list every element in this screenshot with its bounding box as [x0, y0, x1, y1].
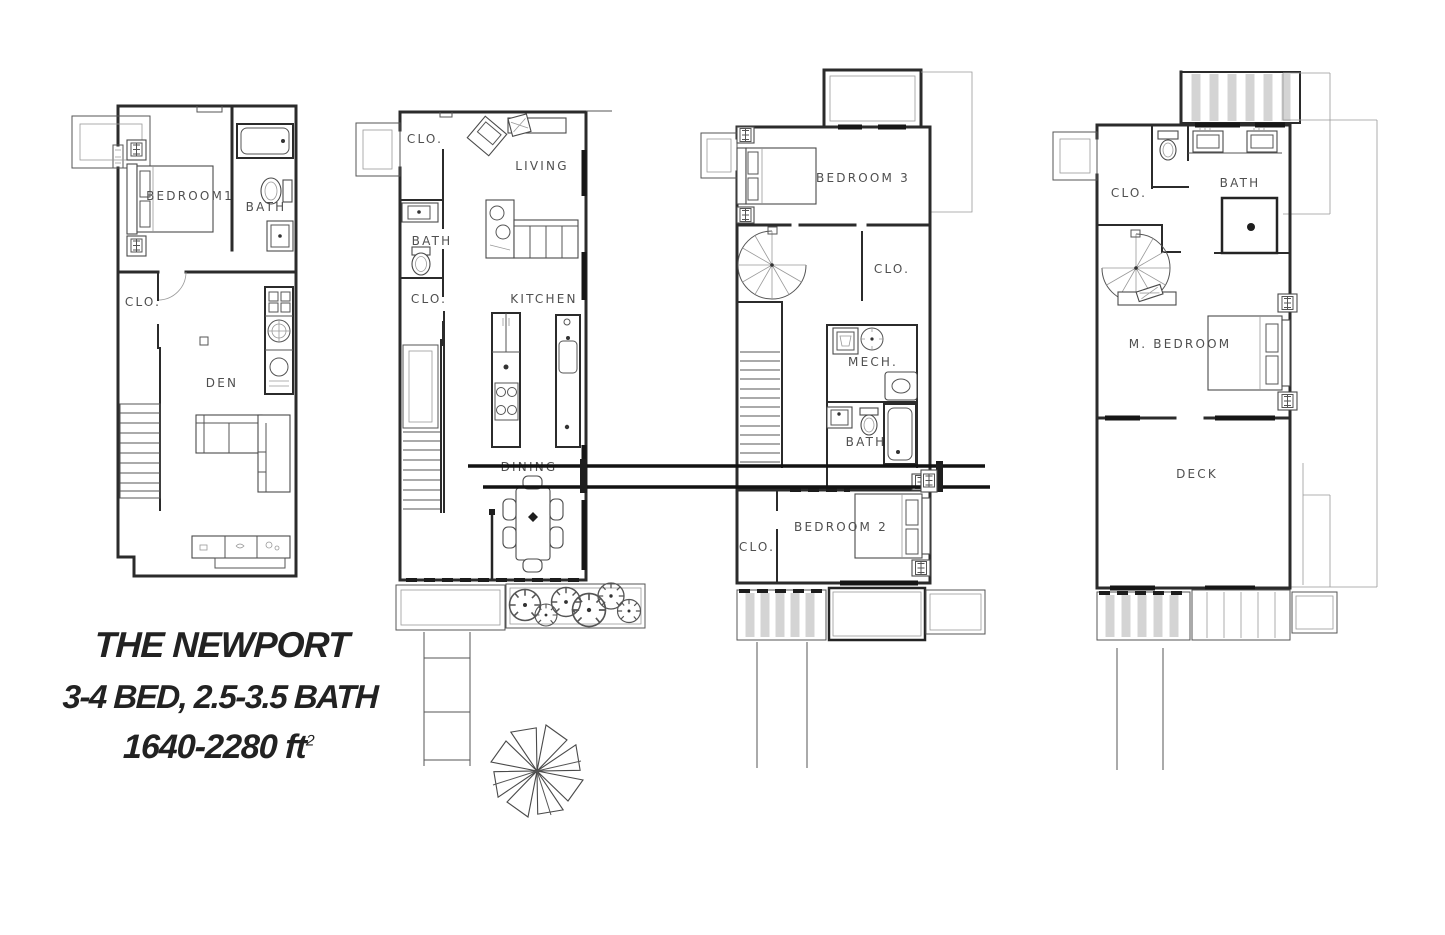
- plan3-spiral-stair: [738, 227, 806, 299]
- plan1-bath-fixtures: [237, 124, 293, 251]
- title-block: THE NEWPORT 3-4 BED, 2.5-3.5 BATH 1640-2…: [39, 618, 400, 773]
- floor-plan-2: CLO. LIVING BATH CLO. KITCHEN DINING: [356, 111, 645, 825]
- plan4-porches: [1097, 590, 1337, 640]
- room-label-bath1: BATH: [246, 200, 287, 214]
- plan3-balcony: [701, 133, 737, 178]
- room-label-closet1: CLO.: [125, 295, 161, 309]
- plan-title: THE NEWPORT: [43, 618, 401, 672]
- plan1-floor-register: [200, 337, 208, 345]
- plan2-walkway: [424, 632, 470, 766]
- plan2-planting-bed: [506, 583, 645, 628]
- room-label-closet3-bottom: CLO.: [739, 540, 775, 554]
- floor-plan-1: BEDROOM1 BATH CLO. DEN: [72, 106, 296, 576]
- room-label-closet2-mid: CLO.: [411, 292, 447, 306]
- floor-plan-4: CLO. BATH M. BEDROOM DECK: [1053, 72, 1377, 770]
- plan4-skylight: [1181, 72, 1300, 123]
- room-label-deck: DECK: [1176, 467, 1218, 481]
- plan4-balcony: [1053, 132, 1097, 180]
- plan1-kitchenette: [265, 287, 293, 394]
- floorplan-canvas: BEDROOM1 BATH CLO. DEN: [0, 0, 1445, 935]
- plan2-kitchen: [492, 313, 580, 447]
- plan2-porch: [396, 585, 505, 630]
- plan4-master-bed: [1208, 294, 1297, 410]
- room-label-closet4: CLO.: [1111, 186, 1147, 200]
- floor-plan-3: BEDROOM 3 CLO. MECH. BATH CLO. BEDROOM 2: [701, 70, 985, 768]
- plan4-roof-outline: [1283, 73, 1377, 587]
- plan2-sofa: [486, 200, 578, 258]
- square-footage-exponent: 2: [306, 732, 314, 749]
- plan4-shower: [1222, 198, 1277, 253]
- room-label-kitchen: KITCHEN: [510, 292, 577, 306]
- room-label-master-bedroom: M. BEDROOM: [1129, 337, 1232, 351]
- plan3-porches: [737, 588, 985, 640]
- room-label-bedroom1: BEDROOM1: [146, 189, 234, 203]
- plan2-dining-set: [503, 476, 563, 572]
- room-label-bath2: BATH: [412, 234, 453, 248]
- floorplan-sheet: BEDROOM1 BATH CLO. DEN: [0, 0, 1445, 935]
- plan3-bath-fixtures: [827, 404, 916, 464]
- plan3-walkway: [757, 642, 807, 768]
- room-label-living: LIVING: [515, 159, 568, 173]
- room-label-bath3: BATH: [846, 435, 887, 449]
- plan3-roof-deck: [824, 70, 972, 212]
- plan2-armchair: [467, 116, 506, 155]
- plan2-stairs: [403, 340, 441, 512]
- plan2-tree: [483, 717, 590, 824]
- room-label-closet3-top: CLO.: [874, 262, 910, 276]
- plan3-bed3: [737, 127, 816, 223]
- room-label-bedroom2: BEDROOM 2: [794, 520, 888, 534]
- room-label-bedroom3: BEDROOM 3: [816, 171, 910, 185]
- room-label-closet2-top: CLO.: [407, 132, 443, 146]
- plan2-credenza: [508, 114, 566, 136]
- plan1-stairs: [120, 404, 160, 498]
- square-footage-value: 1640-2280 ft: [122, 728, 306, 766]
- room-label-den: DEN: [206, 376, 238, 390]
- bed-bath-spec: 3-4 BED, 2.5-3.5 BATH: [41, 672, 399, 722]
- square-footage: 1640-2280 ft2: [39, 722, 397, 773]
- plan4-double-vanity: [1188, 128, 1282, 153]
- room-label-mech: MECH.: [848, 355, 898, 369]
- room-label-bath4: BATH: [1220, 176, 1261, 190]
- plan4-wc-toilet: [1158, 131, 1178, 160]
- plan4-walkway: [1117, 648, 1163, 770]
- plan1-sectional-sofa: [196, 415, 290, 492]
- plan3-stairs: [740, 352, 780, 462]
- plan2-balcony: [356, 123, 400, 176]
- plan1-mudroom-bench: [192, 536, 290, 568]
